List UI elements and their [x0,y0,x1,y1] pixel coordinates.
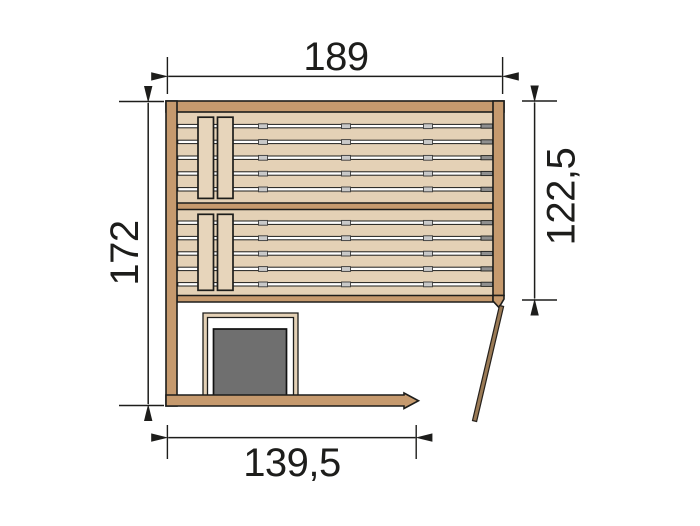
gap-end-cap [481,124,493,128]
plank-joint [342,220,351,225]
plank-joint [259,282,268,287]
plank-joint [342,267,351,272]
bench-slat [198,117,214,198]
dimension-left: 172 [103,102,164,406]
plank-joint [342,155,351,160]
plank-joint [424,251,433,256]
dimension-right: 122,5 [522,101,584,300]
plank-joint [259,220,268,225]
left-wall [166,101,177,406]
gap-end-cap [481,236,493,240]
plank-joint [424,220,433,225]
dimension-label-left: 172 [103,220,147,285]
door [473,306,504,422]
plank-joint [259,124,268,129]
plank-joint [424,267,433,272]
plank-joint [259,171,268,176]
gap-end-cap [481,282,493,286]
top-wall [166,101,504,112]
plank-joint [342,251,351,256]
plank-joint [424,282,433,287]
plank-joint [424,155,433,160]
plank-joint [342,282,351,287]
bench-slat [198,214,214,290]
dimension-label-bottom: 139,5 [243,441,341,485]
plank-joint [342,236,351,241]
gap-end-cap [481,140,493,144]
plank-joint [342,171,351,176]
dimension-label-top: 189 [303,35,368,79]
plank-joint [424,124,433,129]
plank-joint [424,140,433,145]
plank-joint [424,236,433,241]
plank-joint [259,187,268,192]
dimension-label-right: 122,5 [540,148,584,246]
bottom-wall [166,393,419,409]
bench-front-edge [177,296,493,303]
plank-joint [259,155,268,160]
gap-end-cap [481,267,493,271]
sauna-structure [166,101,504,422]
drawing-canvas: 189 172 122,5 139,5 [0,0,700,526]
plank-joint [259,236,268,241]
plank-joint [342,140,351,145]
gap-end-cap [481,251,493,255]
plank-joint [342,124,351,129]
sauna-floorplan-drawing: 189 172 122,5 139,5 [0,0,700,526]
plank-joint [259,267,268,272]
plank-joint [424,171,433,176]
plank-joint [259,251,268,256]
bench-slat [218,214,234,290]
dimension-top: 189 [167,35,502,94]
plank-joint [342,187,351,192]
bench-slat [218,117,234,198]
gap-end-cap [481,187,493,191]
bench-divider-edge [177,203,493,210]
dimension-bottom: 139,5 [167,425,416,485]
plank-joint [259,140,268,145]
plank-joint [424,187,433,192]
gap-end-cap [481,156,493,160]
gap-end-cap [481,221,493,225]
sauna-heater [214,329,287,396]
right-wall [493,101,504,296]
gap-end-cap [481,171,493,175]
